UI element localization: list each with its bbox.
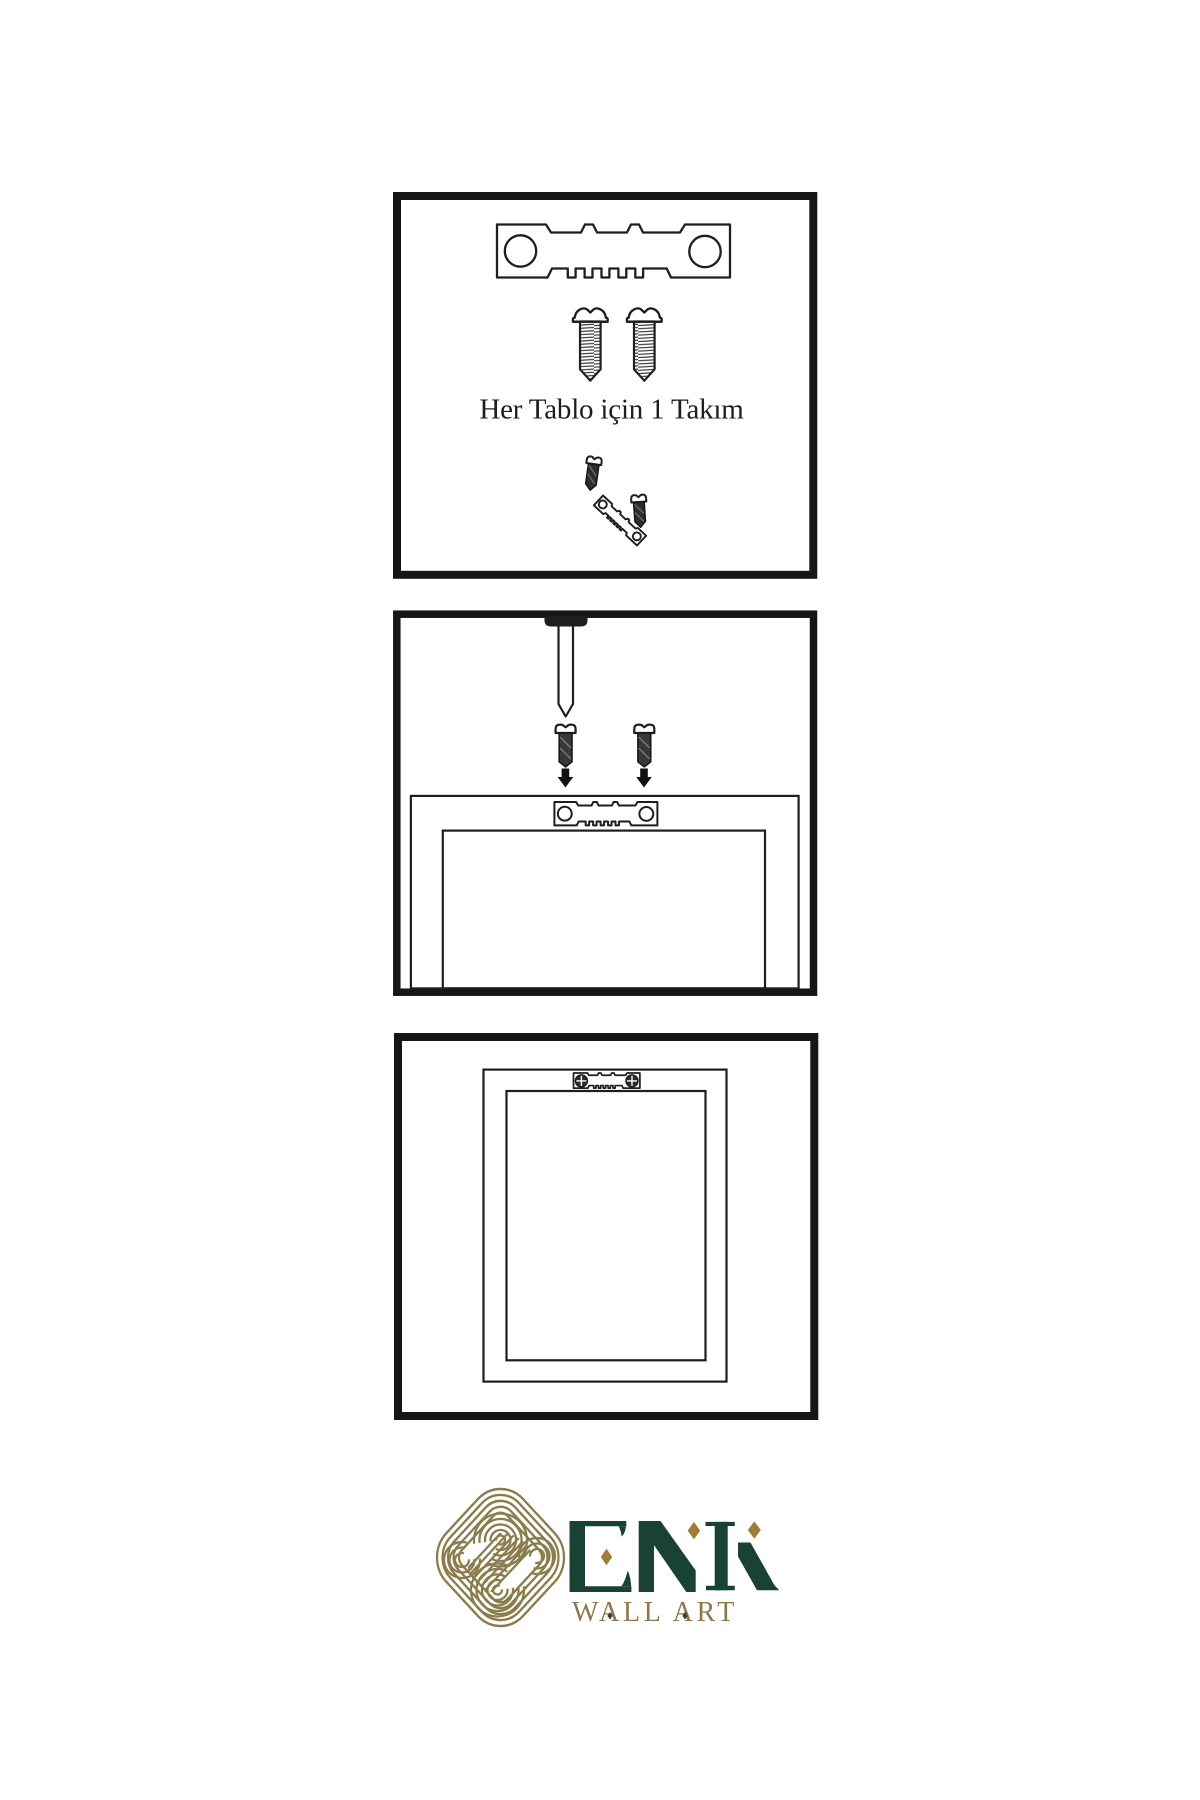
svg-text:WALL ART: WALL ART <box>572 1597 738 1628</box>
svg-text:Her Tablo için 1 Takım: Her Tablo için 1 Takım <box>479 394 744 426</box>
